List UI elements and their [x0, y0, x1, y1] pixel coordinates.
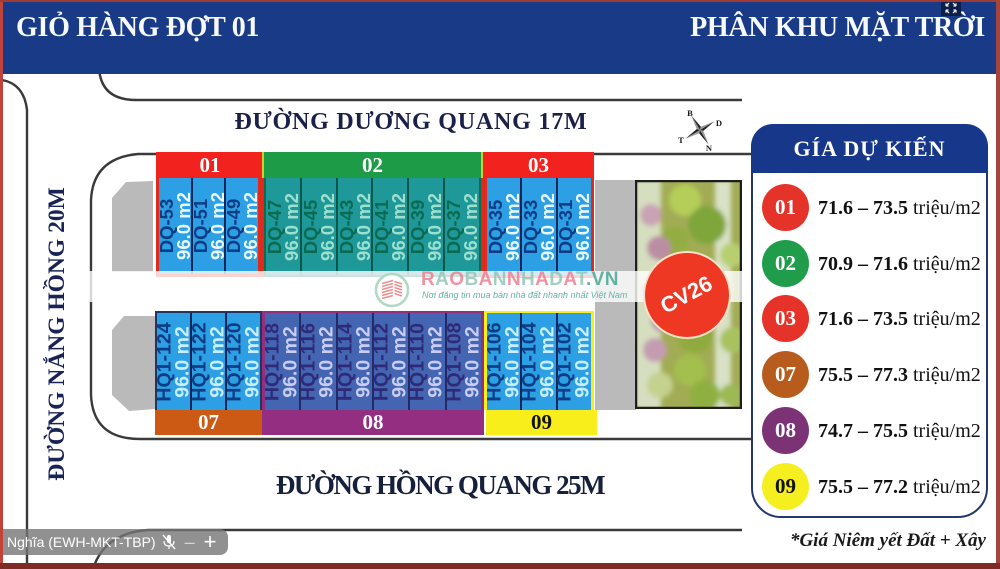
- svg-text:T: T: [678, 135, 684, 145]
- svg-text:N: N: [706, 143, 713, 153]
